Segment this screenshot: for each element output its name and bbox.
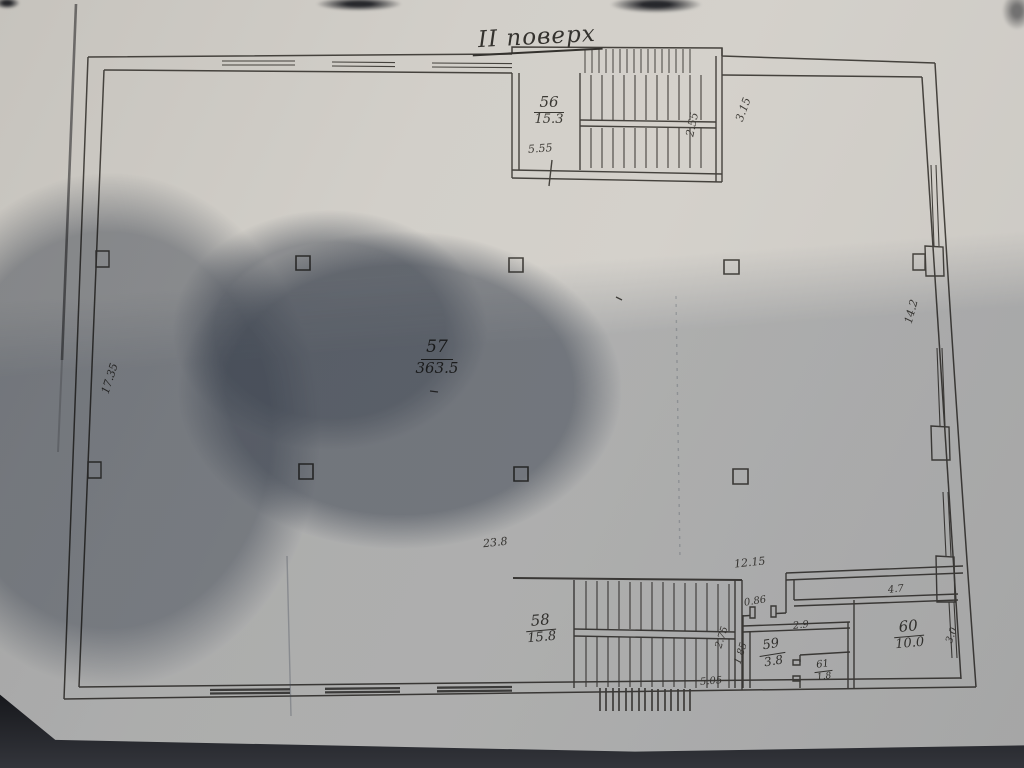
room-56-number: 56 <box>534 94 563 113</box>
page-edge-line <box>58 4 76 452</box>
room-60-label: 60 10.0 <box>883 615 936 654</box>
room-57-area: 363.5 <box>405 360 469 377</box>
room-56-label: 56 15.3 <box>524 93 574 128</box>
room-58-label: 58 15.8 <box>517 609 566 648</box>
floor-plan-photo: II поверх 56 15.3 57 363.5 58 15.8 59 3.… <box>0 0 1024 768</box>
dim-stair-top-width: 5.55 <box>528 141 553 156</box>
room-57-label: 57 363.5 <box>405 338 469 377</box>
dim-stair-bottom-width: 5.05 <box>700 675 723 688</box>
columns <box>296 256 748 484</box>
room-57-number: 57 <box>421 338 453 360</box>
room-59-label: 59 3.8 <box>750 631 795 672</box>
exterior-walls <box>64 47 976 699</box>
floorplan-linework <box>0 0 1024 768</box>
windows-bottom-wall <box>210 687 512 694</box>
windows-right-wall <box>913 165 957 658</box>
paper-creases <box>287 296 680 716</box>
piers-left-wall <box>88 251 109 478</box>
room-61-label: 61 1.8 <box>804 651 841 684</box>
room-56-area: 15.3 <box>524 113 574 128</box>
dim-room60-width: 4.7 <box>887 583 904 596</box>
dim-room59-width: 2.9 <box>792 619 809 632</box>
dim-hall-bottom: 23.8 <box>482 535 508 550</box>
windows-top-wall <box>222 61 512 68</box>
